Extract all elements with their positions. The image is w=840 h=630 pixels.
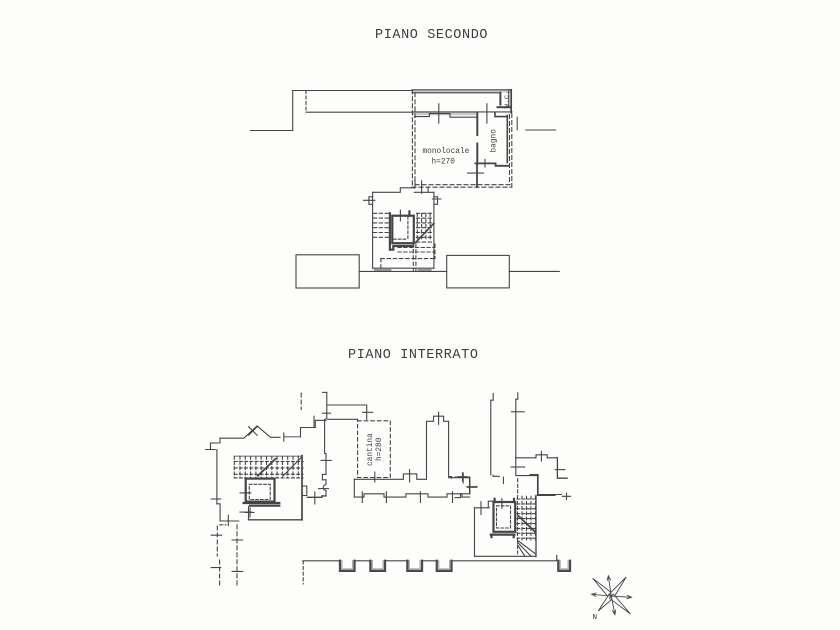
svg-text:PIANO INTERRATO: PIANO INTERRATO	[348, 348, 479, 363]
svg-text:PIANO SECONDO: PIANO SECONDO	[375, 28, 488, 43]
svg-text:bagno: bagno	[491, 129, 499, 153]
svg-text:cantina: cantina	[367, 433, 375, 466]
svg-text:N: N	[593, 614, 598, 622]
svg-text:h=280: h=280	[376, 437, 384, 461]
svg-text:monolocale: monolocale	[423, 148, 470, 156]
svg-text:h=270: h=270	[432, 159, 456, 167]
svg-text:w.c.: w.c.	[504, 90, 512, 108]
